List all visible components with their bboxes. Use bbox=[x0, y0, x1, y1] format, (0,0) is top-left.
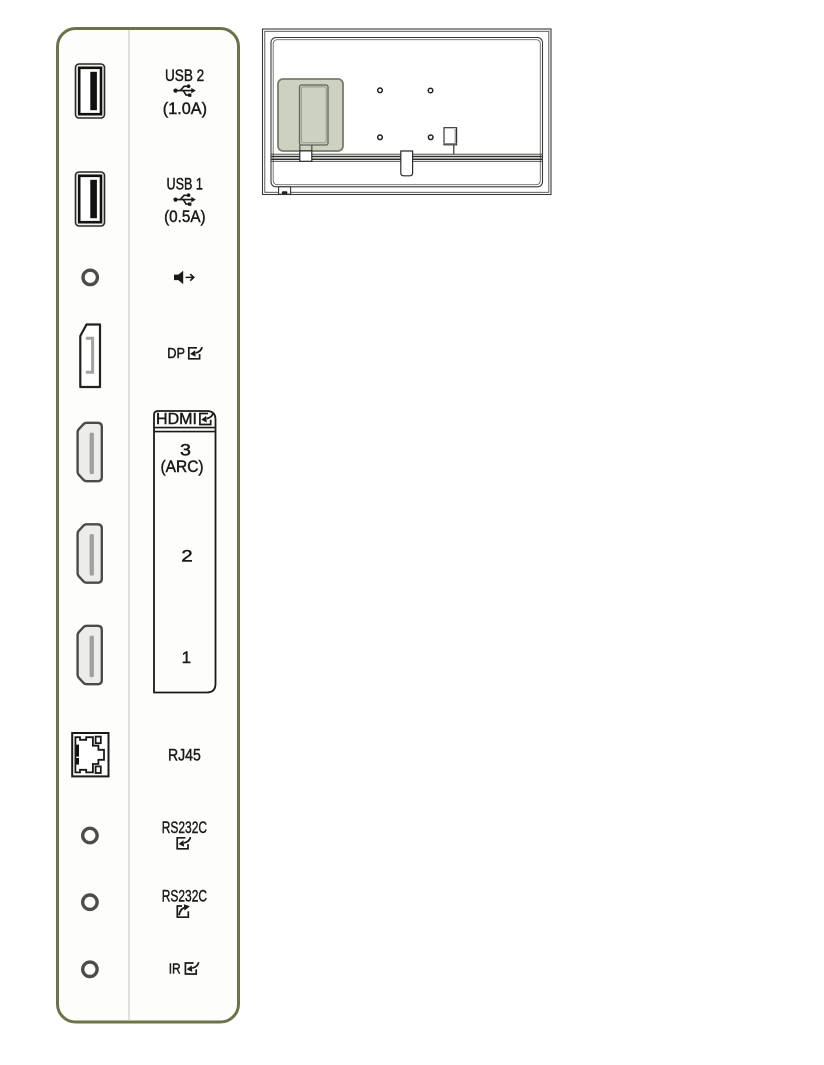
svg-text:RJ45: RJ45 bbox=[168, 747, 201, 765]
svg-text:DP: DP bbox=[167, 346, 185, 362]
svg-text:HDMI: HDMI bbox=[156, 411, 197, 428]
svg-text:RS232C: RS232C bbox=[162, 819, 207, 837]
svg-text:(ARC): (ARC) bbox=[161, 458, 204, 476]
svg-text:RS232C: RS232C bbox=[162, 887, 207, 905]
svg-text:IR: IR bbox=[169, 961, 181, 978]
svg-text:USB 1: USB 1 bbox=[167, 176, 203, 194]
svg-text:1: 1 bbox=[182, 648, 191, 667]
svg-text:(1.0A): (1.0A) bbox=[163, 100, 207, 118]
svg-text:(0.5A): (0.5A) bbox=[164, 208, 206, 226]
svg-text:USB 2: USB 2 bbox=[165, 67, 204, 85]
svg-text:3: 3 bbox=[180, 440, 191, 459]
svg-text:2: 2 bbox=[181, 546, 193, 565]
